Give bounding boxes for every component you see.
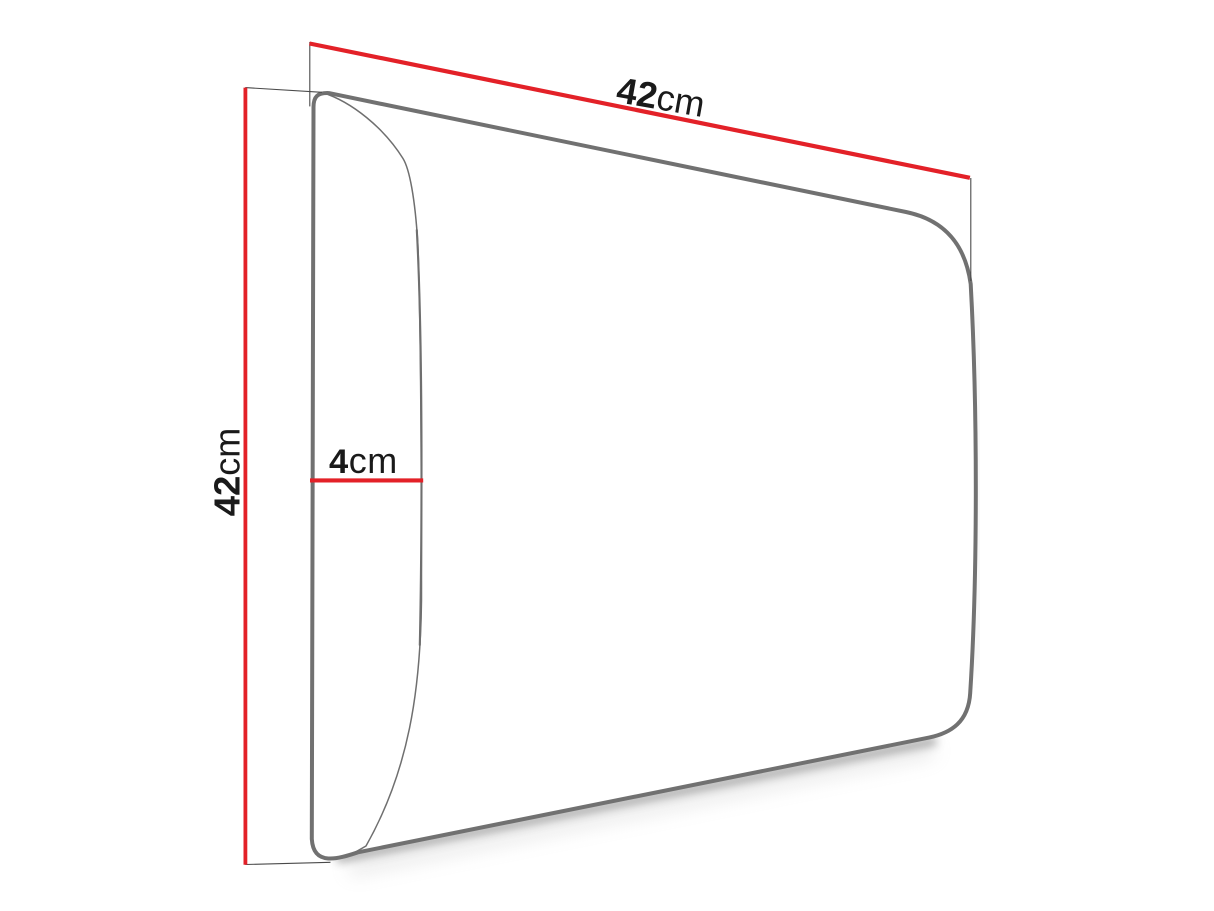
svg-text:42cm: 42cm [206, 428, 247, 517]
svg-text:4cm: 4cm [329, 440, 398, 481]
